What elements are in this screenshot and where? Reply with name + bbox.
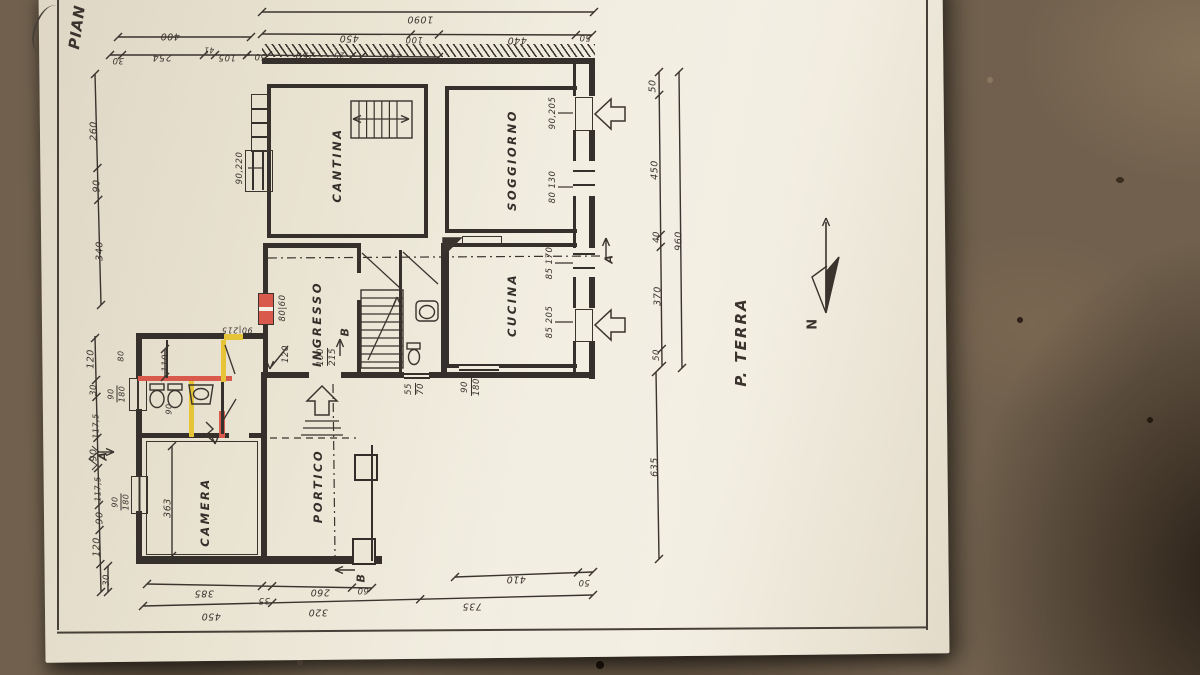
opening-size-label: 90180 [108,386,127,403]
dimension-label: 1090 [407,14,433,25]
dimension-label: 450 [650,160,661,180]
dimension-label: 50 [652,349,662,361]
dimension-label: 30 [102,574,112,586]
section-marker-a: A [97,451,110,460]
opening-size-label: 80 [117,350,126,361]
opening-size-label: 90180 [112,494,131,511]
dimension-label: 370 [653,286,664,306]
opening-size-label: 80|60 [278,295,288,322]
dimension-label: 100 [405,34,423,44]
opening-size-label: 90 [165,403,174,414]
room-label-portico: PORTICO [311,449,325,523]
dimension-label: 400 [160,31,180,42]
dimension-label: 120 [86,349,97,369]
photo-of-floor-plan: PIAN P. TERRA N 109040045010044050302544… [0,0,1200,675]
opening-size-label: 90180 [461,378,481,396]
dimension-label: 90 [95,511,106,524]
opening-size-label: 120 [281,345,291,363]
north-label: N [806,318,821,329]
dimension-label: 440 [507,35,527,46]
dimension-label: 340 [95,241,106,261]
section-marker-b: B [355,574,368,583]
dimension-label: 41 [204,46,215,55]
room-label-cucina: CUCINA [505,273,519,337]
floor-label: P. TERRA [732,297,750,386]
room-label-soggiorno: SOGGIORNO [505,109,519,211]
dimension-label: 210 [382,52,402,63]
room-label-cantina: CANTINA [330,127,344,202]
dimension-label: 260 [89,121,100,141]
dimension-label: 30 [112,55,124,65]
dimension-label: 90 [92,179,103,192]
opening-size-label: 90,205 [548,97,558,130]
dimension-label: 40 [652,231,662,243]
opening-size-label: 5570 [405,383,425,395]
opening-size-label: 90,220 [235,152,245,185]
dimension-label: 117,5 [92,413,101,438]
floor-plan-drawing: PIAN P. TERRA N 109040045010044050302544… [0,0,1200,675]
room-label-camera: CAMERA [198,477,212,546]
dimension-label: 25 [334,51,345,60]
dimension-label: 105 [218,52,236,62]
opening-size-label: 85 170 [545,247,555,280]
plan-linework [0,0,1200,675]
opening-size-label: 363 [163,498,174,518]
opening-size-label: 90|215 [221,326,252,335]
dimension-label: 254 [152,52,172,63]
dimension-label: 635 [650,457,661,477]
dimension-label: 735 [462,601,482,612]
dimension-label: 50 [648,79,659,92]
dimension-label: 260 [310,587,330,598]
dimension-label: 250 [295,50,315,61]
dimension-label: 320 [308,607,328,618]
opening-size-label: 80 130 [548,171,558,204]
section-marker-a: A [603,254,616,263]
opening-size-label: 110 [161,354,171,372]
dimension-label: 410 [506,574,526,585]
dimension-label: 385 [194,588,214,599]
dimension-label: 450 [339,33,359,44]
dimension-label: 50 [578,577,590,587]
room-label-ingresso: INGRESSO [310,281,324,367]
dimension-label: 960 [674,231,685,251]
opening-size-label: 85 205 [545,306,555,339]
dimension-label: 117,5 [94,476,103,501]
dimension-label: 120 [92,537,103,557]
dimension-label: 50 [254,51,266,61]
dimension-label: 60 [357,585,369,595]
dimension-label: 35 [258,595,270,605]
section-marker-b: B [339,328,352,337]
dimension-label: 30 [89,384,99,396]
dimension-label: 450 [201,611,221,622]
dimension-label: 50 [579,32,591,42]
